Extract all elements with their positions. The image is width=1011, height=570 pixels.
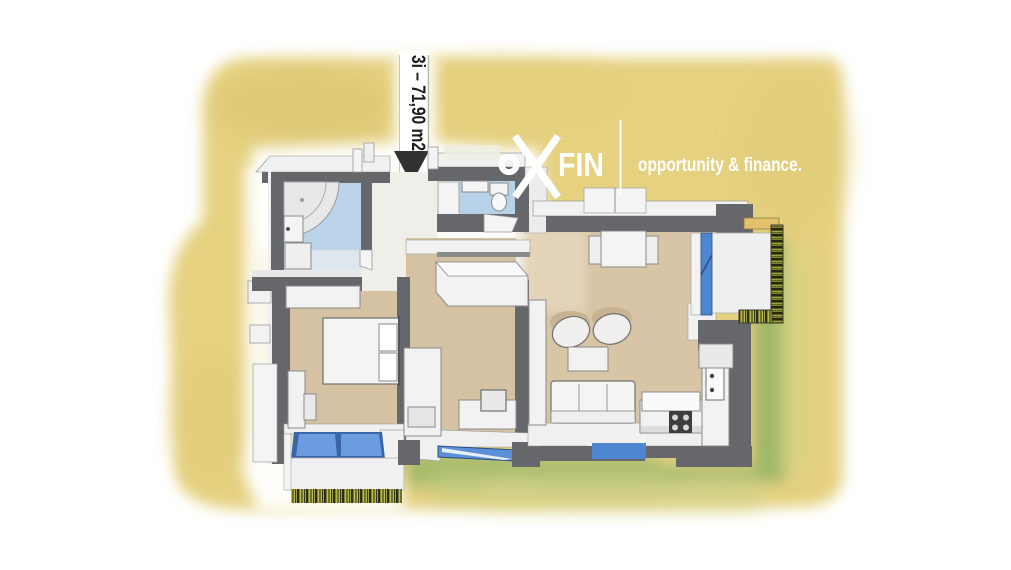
svg-text:opportunity & finance.: opportunity & finance. — [638, 155, 802, 176]
svg-text:FIN: FIN — [558, 146, 604, 183]
svg-text:3i – 71,90 m2: 3i – 71,90 m2 — [407, 55, 428, 151]
